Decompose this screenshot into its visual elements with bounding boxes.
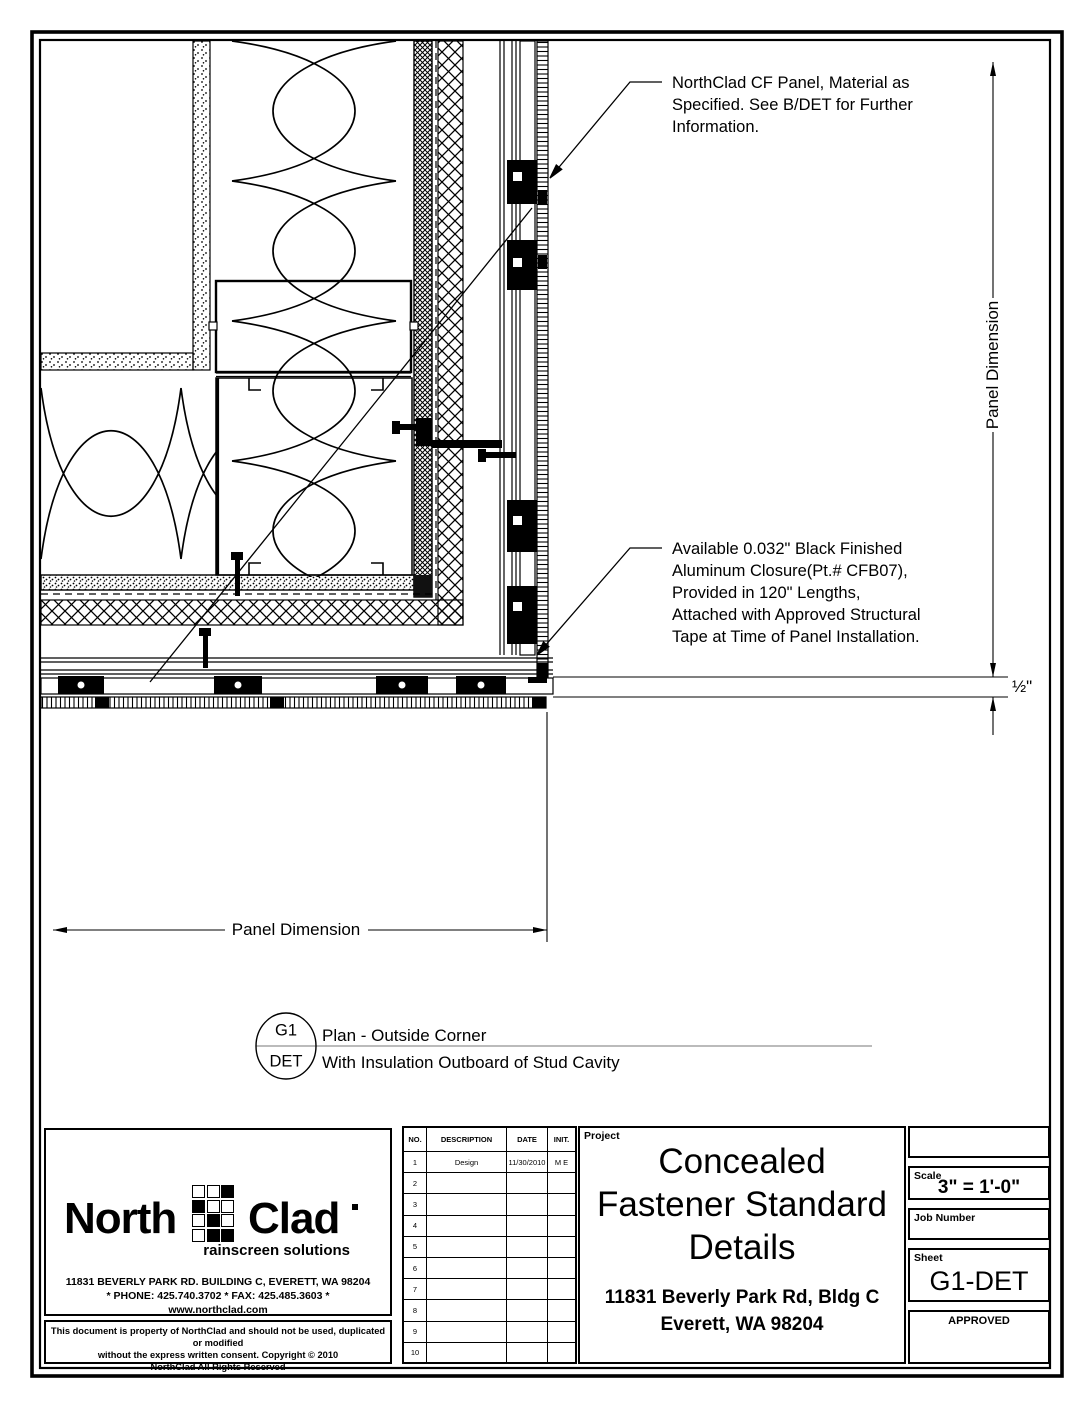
project-address: Everett, WA 98204 bbox=[580, 1311, 904, 1338]
copyright-line: This document is property of NorthClad a… bbox=[46, 1325, 390, 1349]
rev-row-description: Design bbox=[427, 1152, 507, 1173]
rev-row-no: 5 bbox=[404, 1237, 427, 1258]
approved-box: APPROVED bbox=[908, 1310, 1050, 1364]
project-title: Details bbox=[580, 1226, 904, 1269]
cf-panel-horizontal bbox=[41, 697, 546, 708]
cf-panel-vertical bbox=[537, 41, 548, 683]
gypsum-board-vertical bbox=[193, 41, 210, 370]
logo-text-north: North bbox=[64, 1194, 176, 1244]
callout-number: G1 bbox=[275, 1022, 297, 1041]
panel-note: NorthClad CF Panel, Material as Specifie… bbox=[672, 72, 913, 138]
job-number-label: Job Number bbox=[914, 1212, 975, 1224]
rev-col-header: DATE bbox=[507, 1128, 548, 1152]
rev-col-header: INIT. bbox=[548, 1128, 575, 1152]
rev-row-no: 3 bbox=[404, 1194, 427, 1215]
job-number-box: Job Number bbox=[908, 1208, 1050, 1240]
company-phone-fax: * PHONE: 425.740.3702 * FAX: 425.485.360… bbox=[46, 1290, 390, 1302]
logo-tagline: rainscreen solutions bbox=[46, 1242, 350, 1259]
exterior-insulation-horizontal bbox=[41, 600, 463, 625]
callout-subtitle: With Insulation Outboard of Stud Cavity bbox=[322, 1053, 620, 1073]
company-website: www.northclad.com bbox=[46, 1304, 390, 1316]
panel-dimension-horizontal-label: Panel Dimension bbox=[232, 920, 361, 940]
closure-note: Available 0.032" Black Finished Aluminum… bbox=[672, 538, 921, 648]
copyright-line: NorthClad All Rights Reserved bbox=[46, 1361, 390, 1373]
panel-dimension-vertical-label: Panel Dimension bbox=[983, 301, 1003, 430]
rev-row-init: M E bbox=[548, 1152, 575, 1173]
batt-insulation-horizontal bbox=[41, 372, 216, 575]
corner-closure bbox=[528, 677, 547, 683]
logo-box: North Clad rainscreen solutions 11831 BE… bbox=[44, 1128, 392, 1316]
half-inch-label: ½" bbox=[1012, 677, 1032, 697]
callout-sheet: DET bbox=[270, 1053, 303, 1072]
rev-row-no: 10 bbox=[404, 1343, 427, 1364]
scale-value: 3" = 1'-0" bbox=[910, 1177, 1048, 1199]
copyright-box: This document is property of NorthClad a… bbox=[44, 1320, 392, 1364]
project-title: Fastener Standard bbox=[580, 1183, 904, 1226]
project-address: 11831 Beverly Park Rd, Bldg C bbox=[580, 1284, 904, 1311]
exterior-insulation-vertical bbox=[438, 41, 463, 625]
drawing-sheet: NorthClad CF Panel, Material as Specifie… bbox=[0, 0, 1088, 1408]
rev-row-no: 7 bbox=[404, 1279, 427, 1300]
project-title: Concealed bbox=[580, 1140, 904, 1183]
rev-col-header: DESCRIPTION bbox=[427, 1128, 507, 1152]
logo-text-clad: Clad bbox=[248, 1194, 339, 1244]
callout-title: Plan - Outside Corner bbox=[322, 1026, 486, 1046]
rev-col-header: NO. bbox=[404, 1128, 427, 1152]
sheathing-horizontal bbox=[41, 575, 414, 590]
sub-girt-vertical bbox=[520, 41, 535, 655]
copyright-line: without the express written consent. Cop… bbox=[46, 1349, 390, 1361]
rev-row-no: 9 bbox=[404, 1322, 427, 1343]
sheet-number: G1-DET bbox=[910, 1266, 1048, 1297]
spare-box bbox=[908, 1126, 1050, 1158]
rev-row-no: 1 bbox=[404, 1152, 427, 1173]
sheathing-vertical bbox=[414, 41, 432, 597]
scale-box: Scale 3" = 1'-0" bbox=[908, 1166, 1050, 1200]
company-address: 11831 BEVERLY PARK RD. BUILDING C, EVERE… bbox=[46, 1276, 390, 1288]
rev-row-no: 4 bbox=[404, 1216, 427, 1237]
rev-row-date: 11/30/2010 bbox=[507, 1152, 548, 1173]
rev-row-no: 6 bbox=[404, 1258, 427, 1279]
rev-row-no: 2 bbox=[404, 1173, 427, 1194]
sheet-box: Sheet G1-DET bbox=[908, 1248, 1050, 1302]
rev-row-no: 8 bbox=[404, 1300, 427, 1321]
registered-mark-icon bbox=[352, 1204, 358, 1210]
batt-insulation-vertical bbox=[216, 41, 412, 577]
gypsum-board-horizontal bbox=[41, 353, 193, 370]
panel-note-leader bbox=[550, 82, 662, 178]
logo-mosaic-icon bbox=[192, 1185, 234, 1242]
sheet-label: Sheet bbox=[914, 1252, 943, 1264]
project-box: Project Concealed Fastener Standard Deta… bbox=[578, 1126, 906, 1364]
closure-note-leader bbox=[537, 548, 662, 655]
approved-label: APPROVED bbox=[910, 1315, 1048, 1327]
panel-end-cap bbox=[532, 697, 546, 708]
revision-table: NO. DESCRIPTION DATE INIT. 1 Design 11/3… bbox=[402, 1126, 577, 1364]
